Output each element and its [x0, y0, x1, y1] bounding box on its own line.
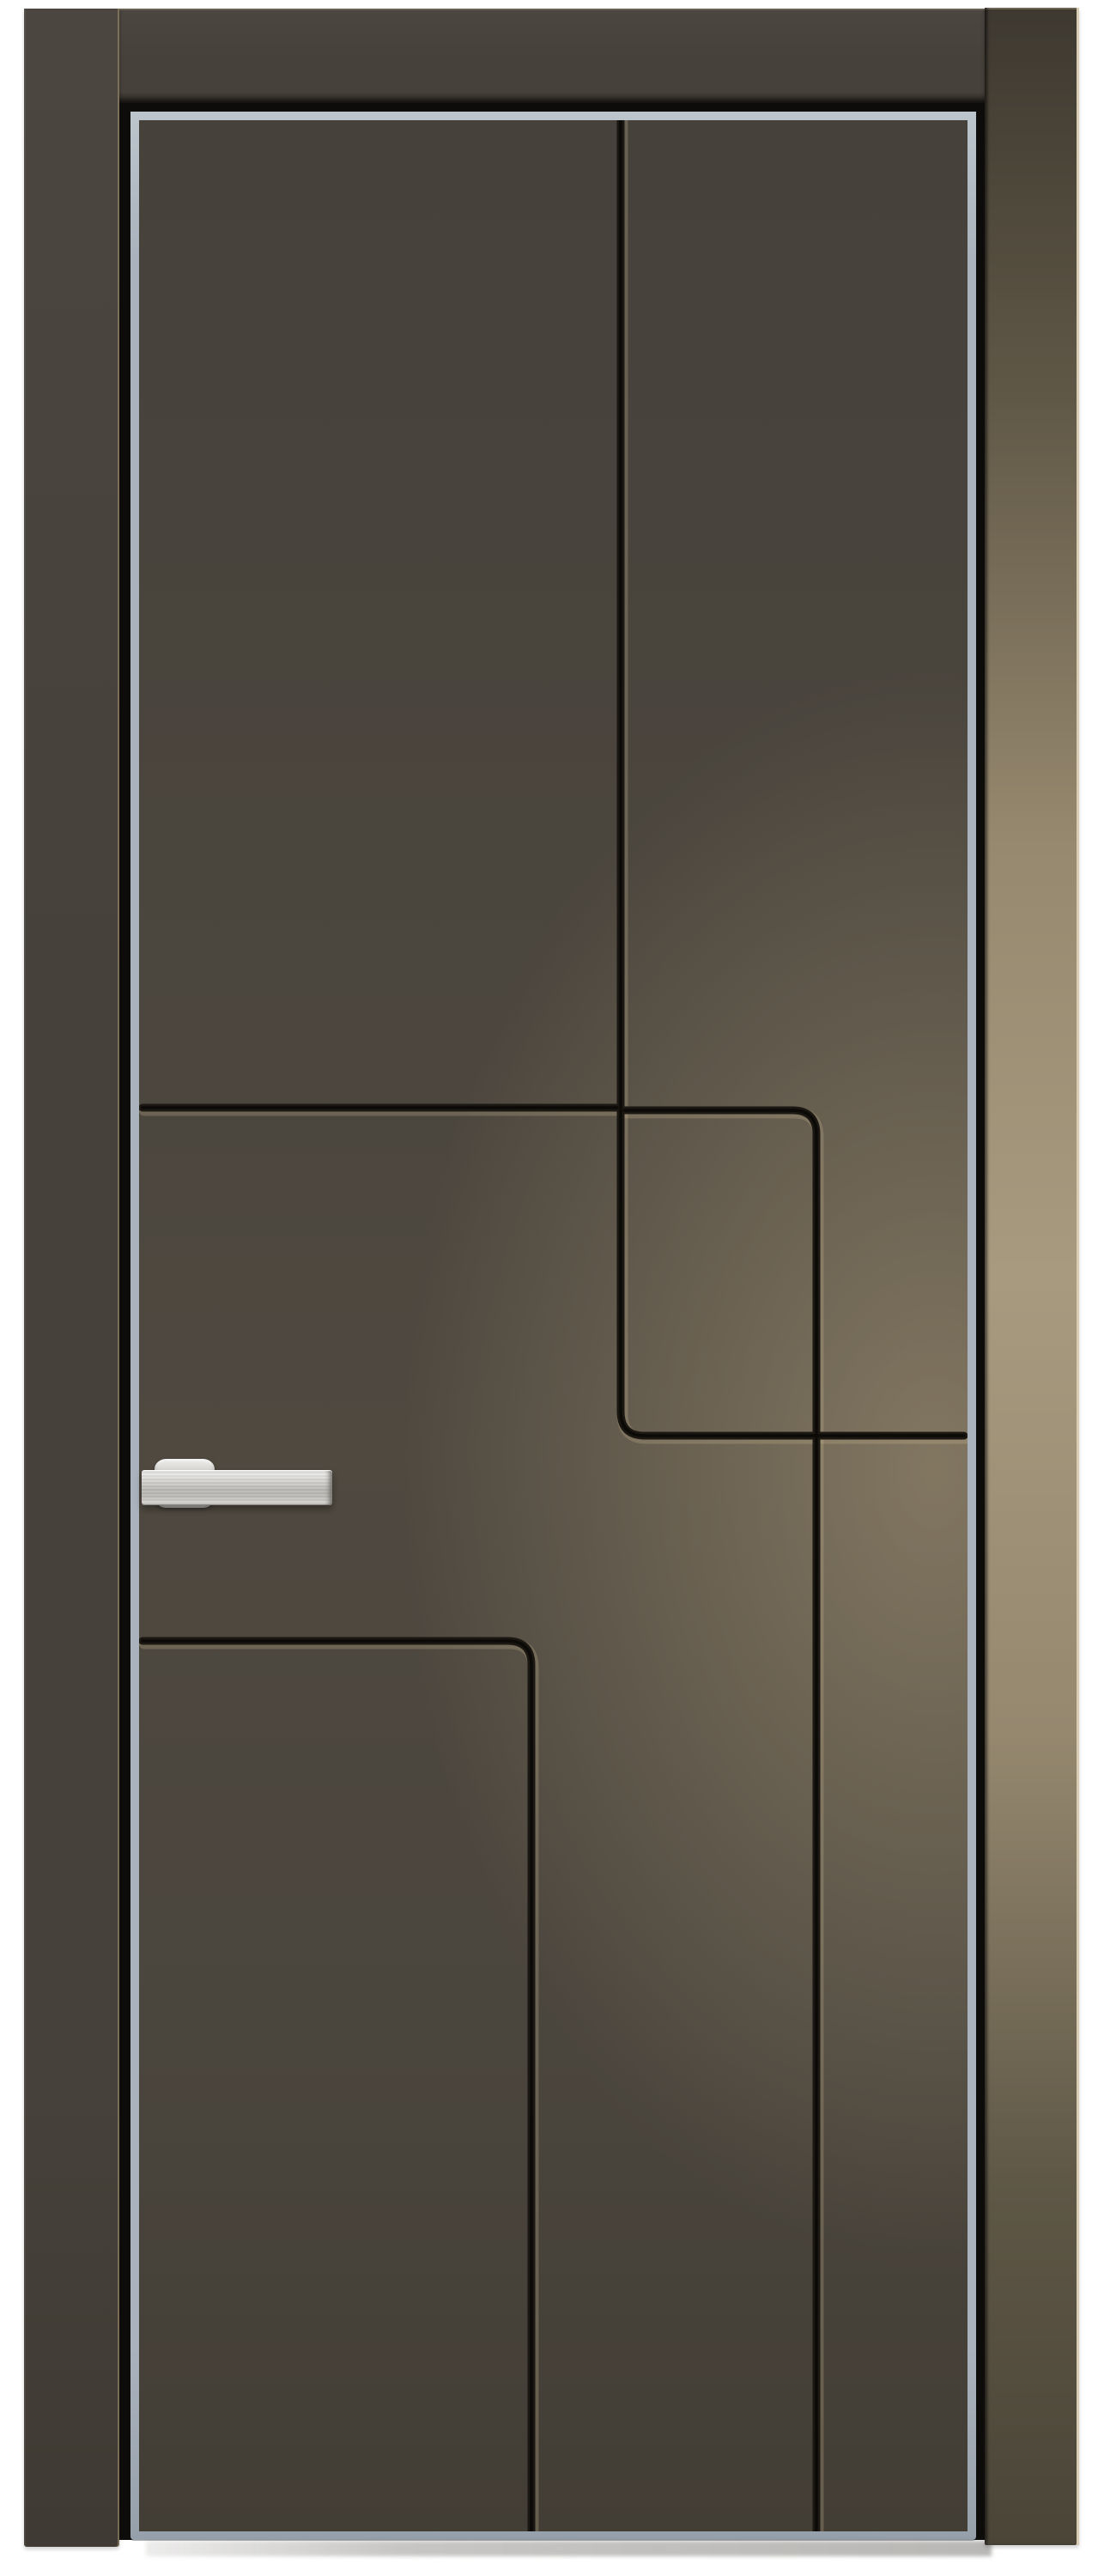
frame-top-architrave [119, 9, 985, 103]
groove-lower-left-horizontal-into-vertical [143, 1641, 531, 2531]
groove-upper-right-horizontal-into-long-vertical [624, 1110, 816, 2531]
floor-shadow [146, 2541, 992, 2556]
door-face-panel [139, 120, 968, 2531]
frame-right-jamb [985, 8, 1079, 2545]
door-handle-bar [142, 1470, 332, 1505]
groove-lower-left-horizontal-into-vertical [143, 1641, 531, 2531]
groove-center-vertical-into-bottom-right-run [621, 120, 964, 1436]
groove-lower-left-horizontal-into-vertical [144, 1643, 533, 2531]
groove-center-vertical-into-bottom-right-run [621, 120, 964, 1436]
groove-center-vertical-into-bottom-right-run [622, 120, 966, 1438]
groove-upper-right-horizontal-into-long-vertical [624, 1110, 816, 2531]
door-product-image [0, 0, 1104, 2576]
door-leaf [130, 112, 976, 2540]
milled-groove-pattern [139, 120, 968, 2531]
frame-left-jamb [24, 9, 119, 2547]
groove-upper-right-horizontal-into-long-vertical [626, 1113, 818, 2531]
